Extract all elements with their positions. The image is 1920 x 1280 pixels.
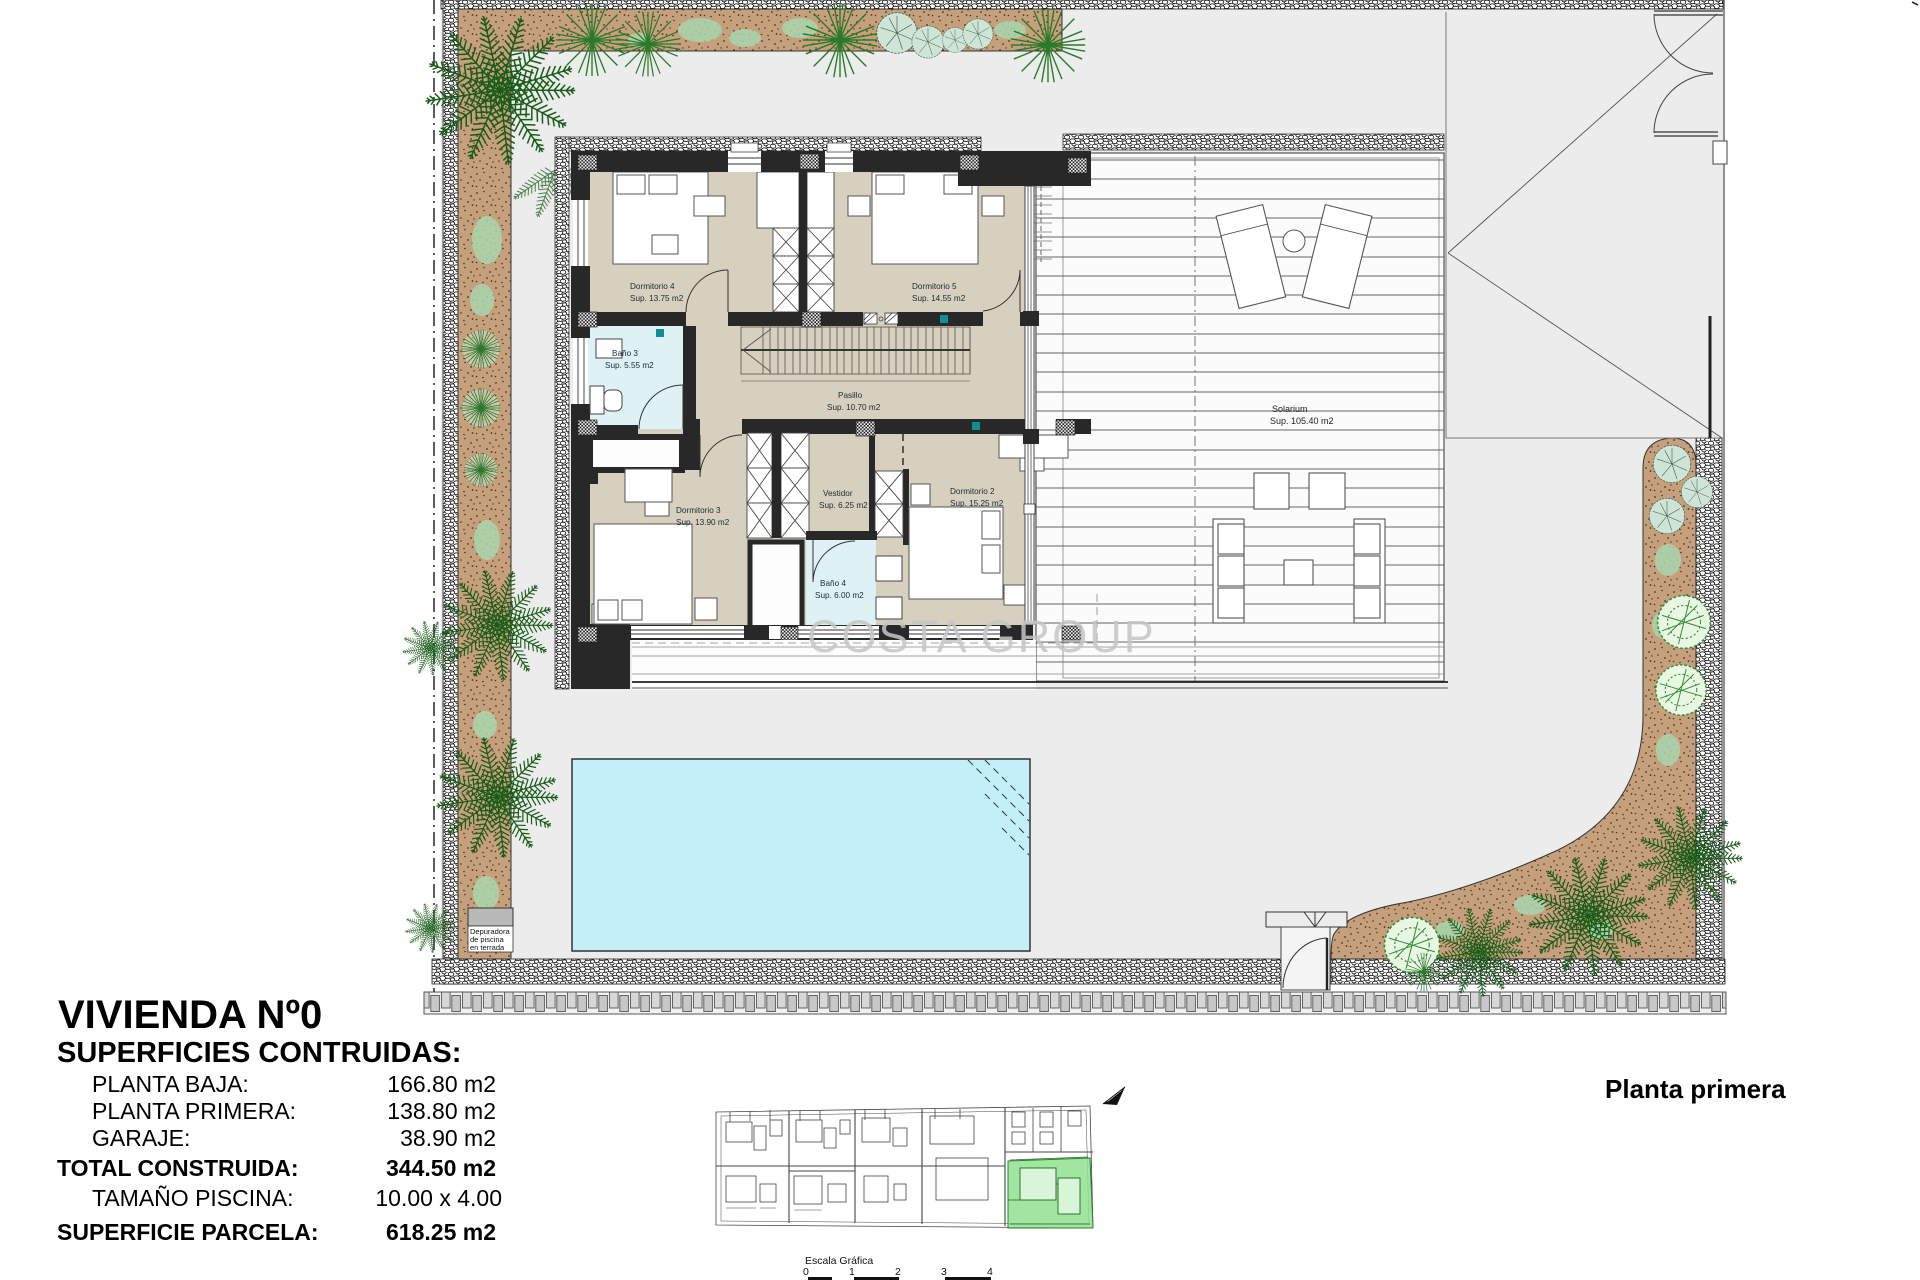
svg-text:1: 1 [849,1266,855,1278]
svg-text:3: 3 [941,1266,947,1278]
svg-text:SUPERFICIE PARCELA:: SUPERFICIE PARCELA: [57,1219,319,1245]
svg-text:Sup. 6.25 m2: Sup. 6.25 m2 [819,501,868,510]
svg-text:Planta primera: Planta primera [1605,1074,1786,1104]
svg-text:PLANTA PRIMERA:: PLANTA PRIMERA: [92,1098,296,1124]
svg-text:138.80 m2: 138.80 m2 [387,1098,496,1124]
svg-text:Sup. 6.00 m2: Sup. 6.00 m2 [815,591,864,600]
svg-text:Solarium: Solarium [1272,404,1308,414]
svg-text:344.50 m2: 344.50 m2 [386,1155,496,1181]
svg-text:Dormitorio 5: Dormitorio 5 [912,282,957,291]
svg-text:TOTAL CONSTRUIDA:: TOTAL CONSTRUIDA: [57,1155,299,1181]
svg-text:38.90 m2: 38.90 m2 [400,1125,496,1151]
svg-text:COSTA GROUP: COSTA GROUP [807,611,1156,662]
svg-text:Sup. 10.70 m2: Sup. 10.70 m2 [827,403,881,412]
svg-text:Sup. 15.25 m2: Sup. 15.25 m2 [950,499,1004,508]
svg-text:Pasillo: Pasillo [838,391,863,400]
svg-text:Dormitorio 2: Dormitorio 2 [950,487,995,496]
svg-text:2: 2 [895,1266,901,1278]
svg-text:Baño 4: Baño 4 [820,579,846,588]
svg-text:Sup. 14.55 m2: Sup. 14.55 m2 [912,294,966,303]
svg-text:Escala Gráfica: Escala Gráfica [805,1255,873,1267]
svg-text:Baño 3: Baño 3 [612,349,638,358]
svg-text:SUPERFICIES CONTRUIDAS:: SUPERFICIES CONTRUIDAS: [57,1037,461,1069]
svg-text:4: 4 [987,1266,993,1278]
svg-text:Vestidor: Vestidor [823,489,853,498]
svg-text:Dormitorio 3: Dormitorio 3 [676,506,721,515]
svg-text:Sup. 5.55 m2: Sup. 5.55 m2 [605,361,654,370]
svg-text:Sup. 13.75 m2: Sup. 13.75 m2 [630,294,684,303]
svg-text:Sup. 13.90 m2: Sup. 13.90 m2 [676,518,730,527]
svg-text:Dormitorio 4: Dormitorio 4 [630,282,675,291]
svg-text:VIVIENDA Nº0: VIVIENDA Nº0 [58,993,322,1037]
svg-text:GARAJE:: GARAJE: [92,1125,190,1151]
svg-text:TAMAÑO PISCINA:: TAMAÑO PISCINA: [92,1185,294,1211]
svg-text:10.00 x 4.00: 10.00 x 4.00 [375,1185,502,1211]
svg-text:0: 0 [803,1266,809,1278]
svg-text:PLANTA BAJA:: PLANTA BAJA: [92,1071,249,1097]
svg-text:618.25 m2: 618.25 m2 [386,1219,496,1245]
svg-text:en terrada: en terrada [470,943,505,952]
svg-text:166.80 m2: 166.80 m2 [387,1071,496,1097]
svg-text:Sup. 105.40 m2: Sup. 105.40 m2 [1270,416,1334,426]
